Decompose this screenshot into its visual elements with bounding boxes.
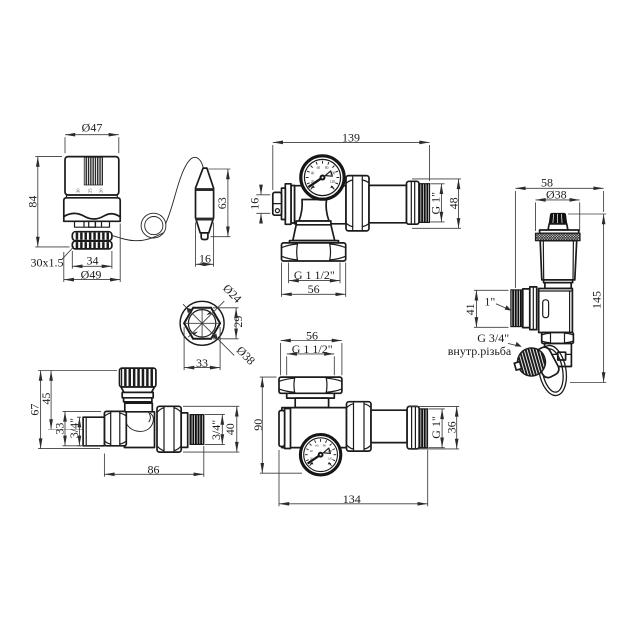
svg-text:80: 80	[323, 444, 327, 448]
svg-text:40: 40	[311, 172, 315, 176]
svg-text:63: 63	[215, 197, 229, 209]
svg-text:25: 25	[88, 188, 93, 193]
svg-text:120: 120	[327, 457, 332, 461]
svg-text:3/4": 3/4"	[67, 418, 81, 438]
svg-text:34: 34	[87, 253, 99, 267]
svg-text:16: 16	[199, 252, 211, 266]
svg-text:G 1": G 1"	[429, 416, 443, 439]
svg-text:40: 40	[310, 449, 314, 453]
svg-text:Ø47: Ø47	[82, 121, 103, 135]
svg-text:29: 29	[231, 316, 245, 328]
svg-text:30x1.5: 30x1.5	[31, 256, 64, 270]
svg-text:G 1 1/2": G 1 1/2"	[294, 268, 335, 282]
svg-text:41: 41	[463, 303, 477, 315]
svg-text:20: 20	[99, 188, 104, 193]
svg-text:60: 60	[315, 444, 319, 448]
svg-text:G 1": G 1"	[428, 192, 442, 215]
svg-text:60: 60	[317, 166, 321, 170]
svg-text:30: 30	[76, 188, 81, 193]
svg-text:84: 84	[25, 196, 39, 208]
svg-text:145: 145	[590, 291, 604, 309]
svg-text:120: 120	[330, 180, 336, 184]
svg-text:40: 40	[223, 423, 237, 435]
svg-text:80: 80	[325, 166, 329, 170]
svg-text:3/4": 3/4"	[209, 420, 223, 440]
svg-text:90: 90	[251, 419, 265, 431]
svg-text:16: 16	[248, 198, 262, 210]
svg-text:внутр.різьба: внутр.різьба	[448, 344, 512, 358]
svg-text:1": 1"	[484, 295, 495, 309]
